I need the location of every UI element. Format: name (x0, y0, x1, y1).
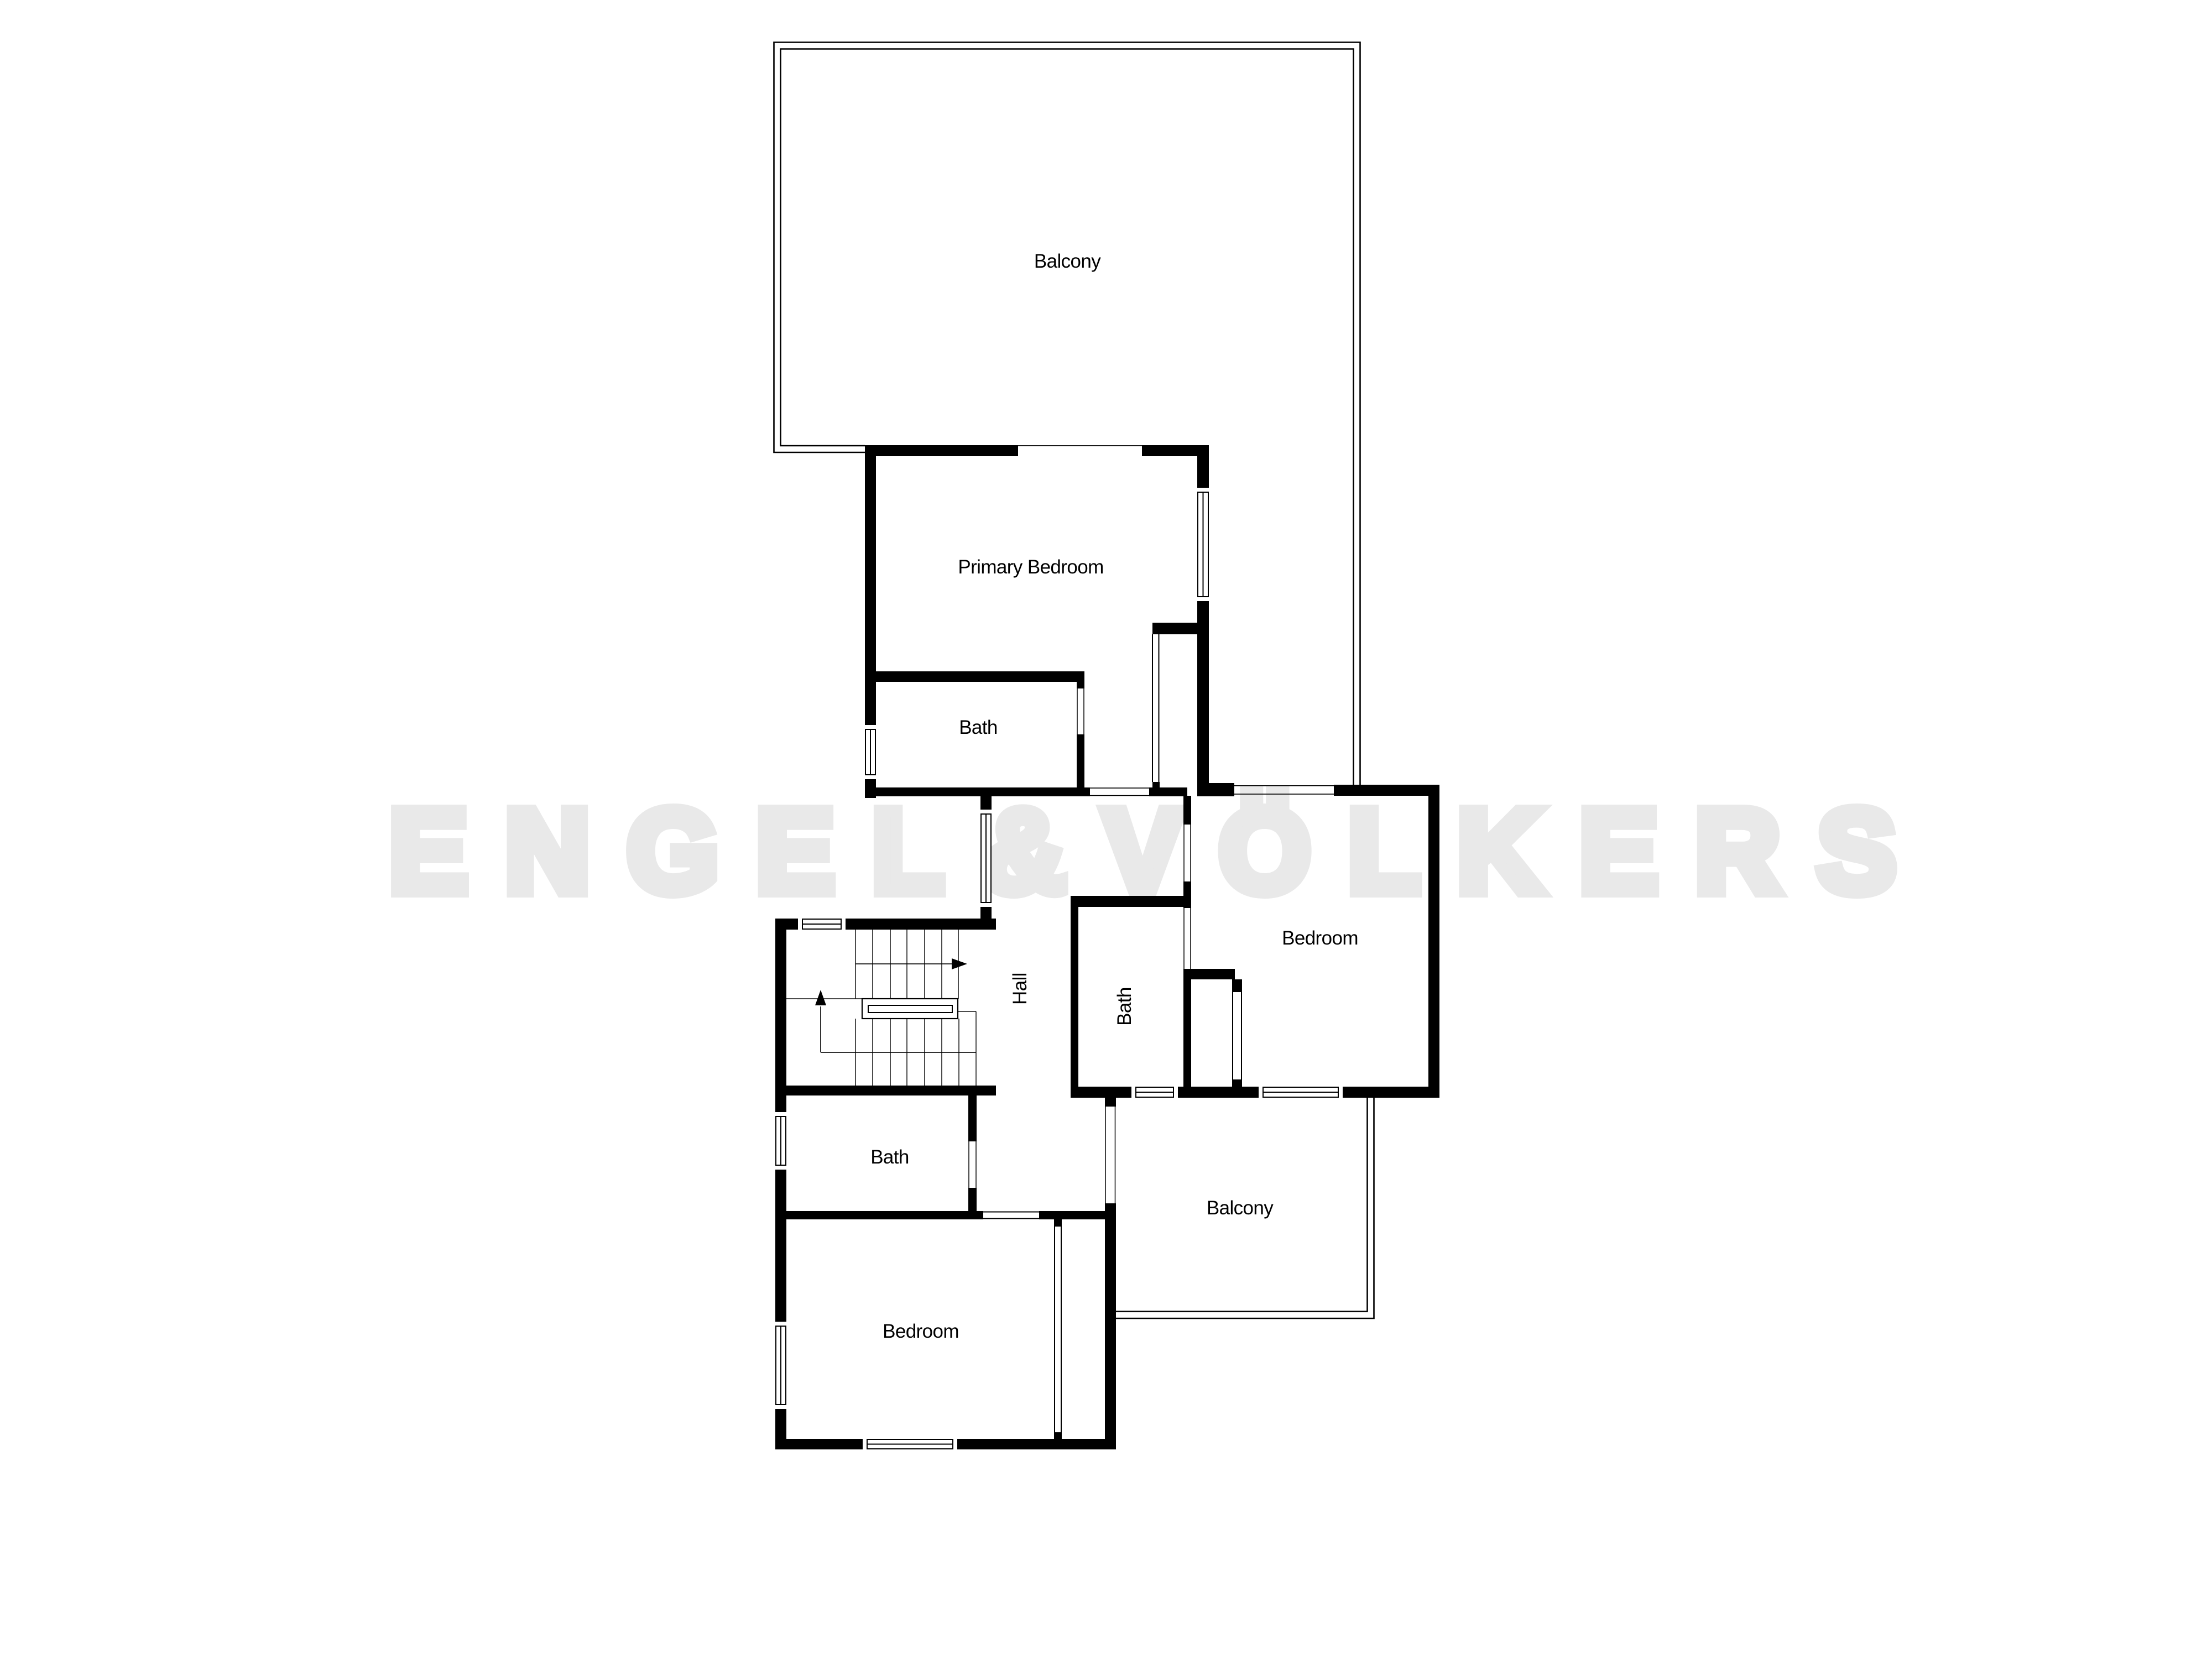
svg-text:Bath: Bath (959, 717, 998, 738)
svg-text:Bath: Bath (870, 1146, 909, 1168)
svg-text:Balcony: Balcony (1207, 1197, 1274, 1219)
svg-text:Bedroom: Bedroom (883, 1321, 959, 1342)
svg-text:Primary Bedroom: Primary Bedroom (958, 556, 1103, 578)
svg-text:Hall: Hall (1009, 973, 1031, 1005)
svg-text:Bedroom: Bedroom (1282, 927, 1358, 949)
svg-text:Balcony: Balcony (1034, 251, 1101, 272)
svg-text:Bath: Bath (1114, 987, 1135, 1026)
